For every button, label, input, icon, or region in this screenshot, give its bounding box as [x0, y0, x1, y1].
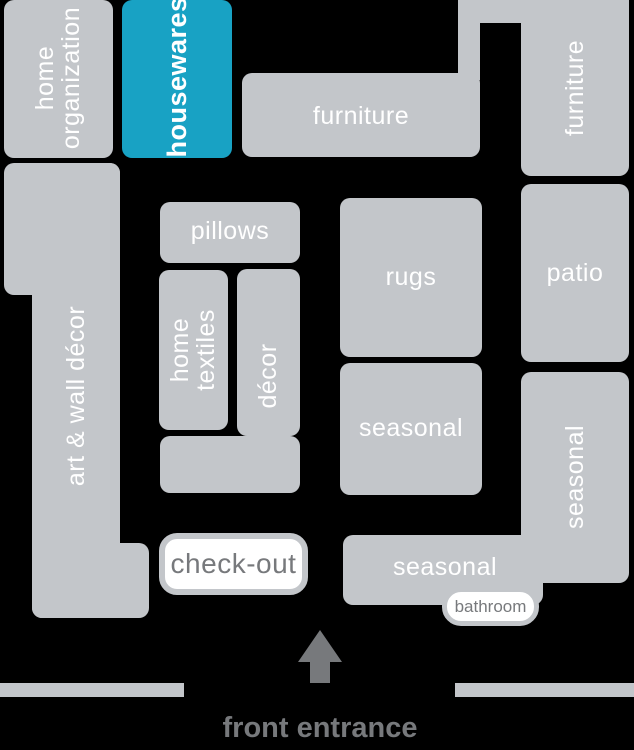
check-out-area[interactable]: check-out [159, 533, 308, 595]
furniture-right-label: furniture [562, 40, 588, 136]
bathroom-label: bathroom [455, 598, 527, 616]
home-organization-label: home organization [32, 0, 85, 166]
rugs-label: rugs [386, 264, 437, 290]
art-wall-decor-label: art & wall décor [63, 306, 89, 486]
seasonal-right-label: seasonal [562, 425, 588, 529]
furniture-connector-block[interactable] [458, 0, 480, 80]
entrance-wall-right [455, 683, 634, 697]
decor-foot-block[interactable] [160, 436, 300, 493]
seasonal-mid-label: seasonal [359, 415, 463, 441]
decor-label: décor [255, 343, 281, 408]
entrance-wall-left [0, 683, 184, 697]
patio-label: patio [547, 260, 604, 286]
home-textiles-label: home textiles [167, 291, 220, 409]
store-floor-map: home organization housewares furniture f… [0, 0, 634, 750]
furniture-main-label: furniture [313, 103, 409, 129]
housewares-label: housewares [163, 0, 191, 158]
bathroom-area[interactable]: bathroom [442, 587, 539, 626]
front-entrance-label: front entrance [223, 713, 418, 743]
art-wall-decor-foot-block[interactable] [32, 543, 149, 618]
pillows-label: pillows [191, 218, 270, 244]
entrance-arrow-stem [310, 660, 330, 683]
check-out-label: check-out [171, 549, 297, 578]
seasonal-bottom-label: seasonal [393, 554, 497, 580]
entrance-arrow-icon [298, 630, 342, 662]
